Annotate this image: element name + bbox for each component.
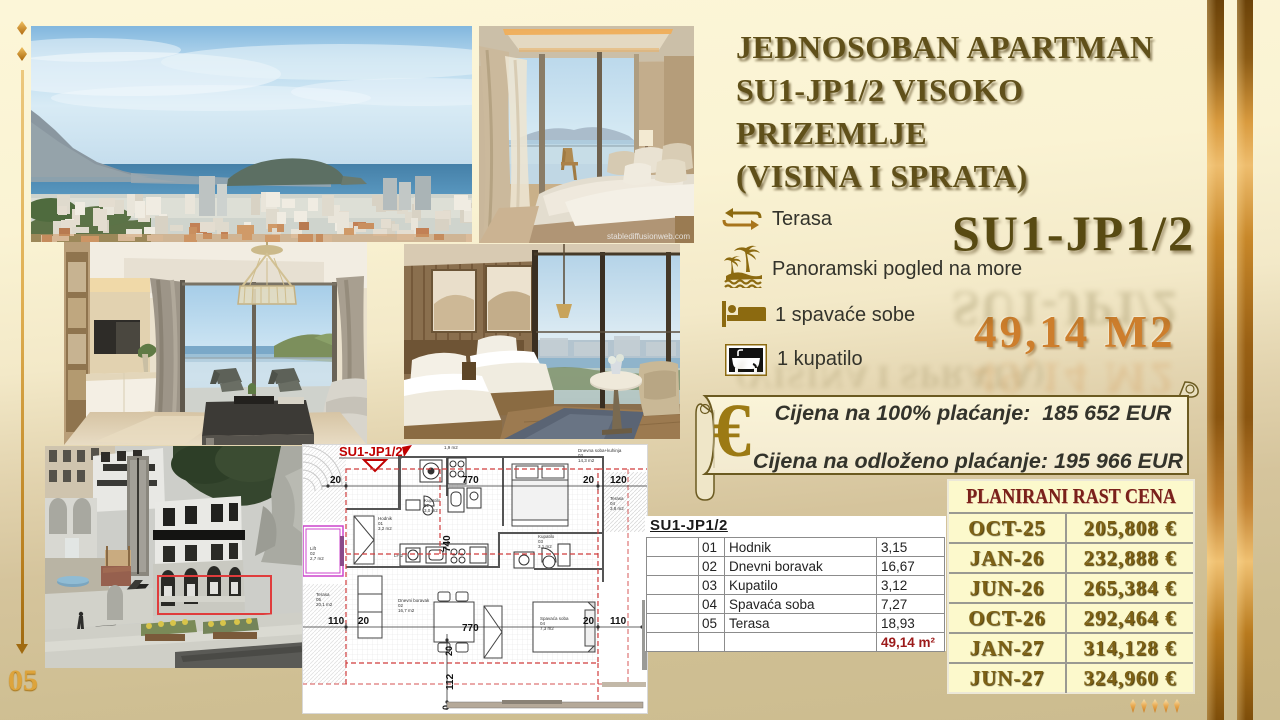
svg-text:110: 110 — [328, 616, 345, 627]
svg-text:20: 20 — [583, 616, 595, 627]
svg-text:3,0 m2: 3,0 m2 — [424, 508, 438, 513]
svg-text:740: 740 — [442, 535, 453, 552]
svg-text:3,1 m2: 3,1 m2 — [538, 544, 552, 549]
svg-text:SU1-JP1/2: SU1-JP1/2 — [339, 444, 403, 459]
svg-text:stablediffusionweb.com: stablediffusionweb.com — [607, 232, 690, 241]
svg-text:20: 20 — [330, 475, 342, 486]
svg-text:1,9 m2: 1,9 m2 — [444, 445, 458, 450]
svg-text:16,7 m2: 16,7 m2 — [398, 608, 415, 613]
svg-text:20,1 m2: 20,1 m2 — [316, 602, 333, 607]
svg-text:14,3 m2: 14,3 m2 — [578, 458, 595, 463]
svg-text:770: 770 — [462, 475, 479, 486]
svg-text:112: 112 — [445, 673, 456, 690]
svg-text:2,7 m2: 2,7 m2 — [310, 556, 324, 561]
svg-text:3,8 m2: 3,8 m2 — [610, 506, 624, 511]
svg-text:120: 120 — [610, 475, 627, 486]
svg-text:Dnevna soba+kuhinja: Dnevna soba+kuhinja — [578, 448, 622, 453]
svg-text:3,2 m2: 3,2 m2 — [378, 526, 392, 531]
svg-text:20: 20 — [444, 646, 454, 656]
svg-text:110: 110 — [610, 616, 627, 627]
svg-text:20: 20 — [583, 475, 595, 486]
svg-text:20: 20 — [358, 616, 370, 627]
svg-text:770: 770 — [462, 623, 479, 634]
